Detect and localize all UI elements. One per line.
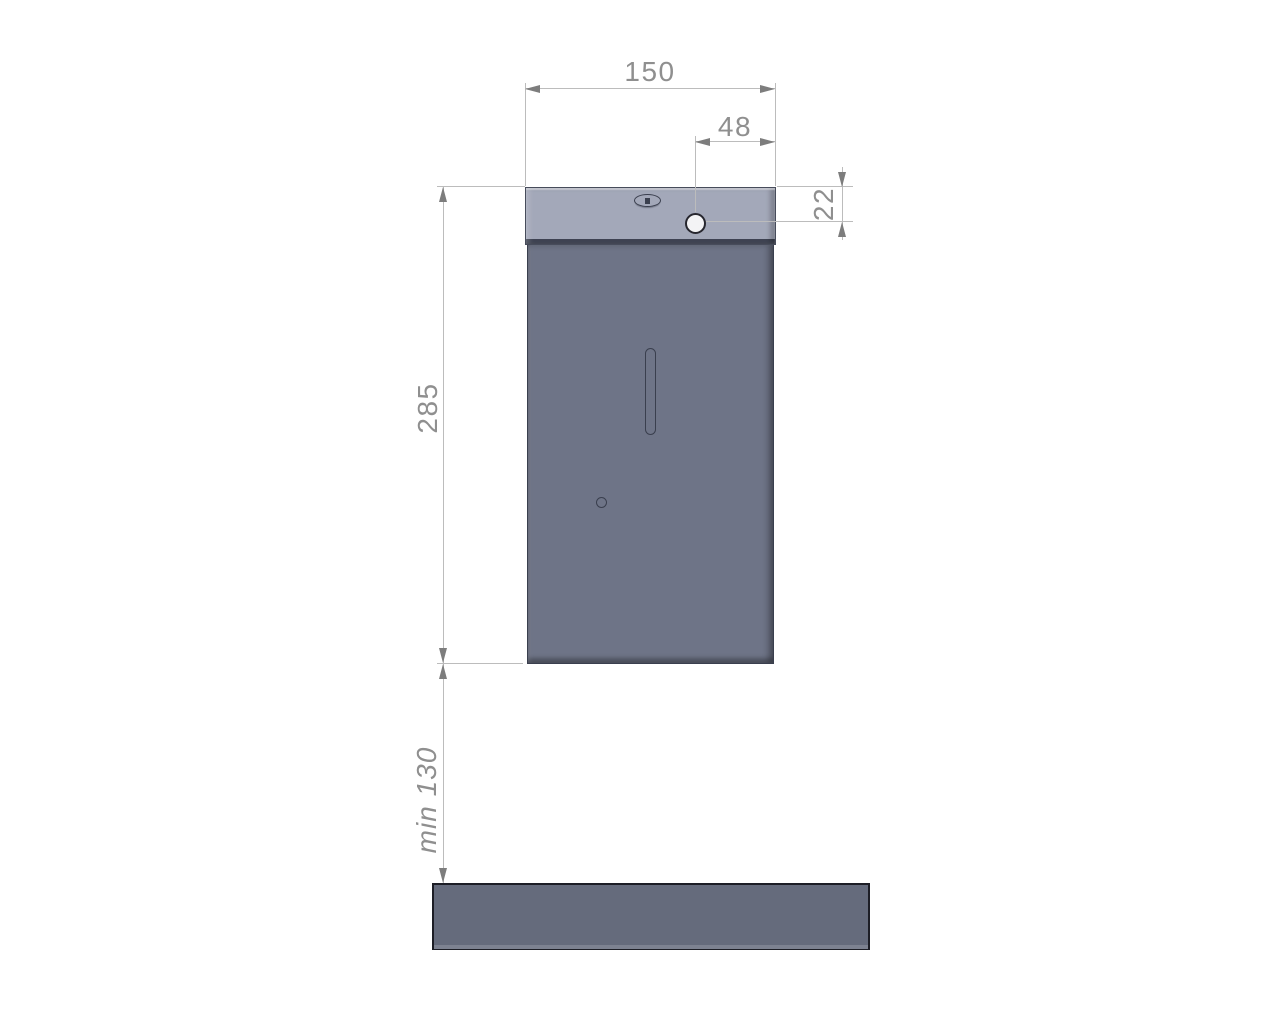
dimension-line [525,88,775,89]
dimension-line [842,167,843,240]
technical-drawing-canvas: 150 48 22 285 min 130 [0,0,1280,1024]
arrow-left-icon [695,138,710,146]
dimension-width-label: 150 [610,58,690,86]
dimension-line [443,663,444,883]
level-indicator-slot [645,348,656,435]
sensor-hole [596,497,607,508]
dispenser-top-cap [525,187,776,245]
extension-line [775,83,776,186]
arrow-left-icon [525,85,540,93]
mounting-hole [685,213,706,234]
dimension-line [695,141,775,142]
keyhole-square-icon [645,198,650,204]
extension-line [525,83,526,186]
dimension-hole-top-label: 22 [810,174,838,234]
lock-keyhole-icon [634,194,661,207]
dimension-line [443,187,444,663]
arrow-right-icon [760,138,775,146]
dimension-hole-offset-label: 48 [705,113,765,141]
dispenser-body [527,245,774,664]
arrow-down-icon [838,172,846,187]
extension-line [437,663,523,664]
extension-line [777,186,853,187]
dimension-min-clearance-label: min 130 [413,740,441,860]
arrow-up-icon [838,222,846,237]
arrow-down-icon [439,648,447,663]
extension-line [437,186,525,187]
arrow-up-icon [439,187,447,202]
dimension-height-label: 285 [414,348,442,468]
counter-surface [432,883,870,950]
arrow-down-icon [439,868,447,883]
arrow-right-icon [760,85,775,93]
arrow-up-icon [439,664,447,679]
